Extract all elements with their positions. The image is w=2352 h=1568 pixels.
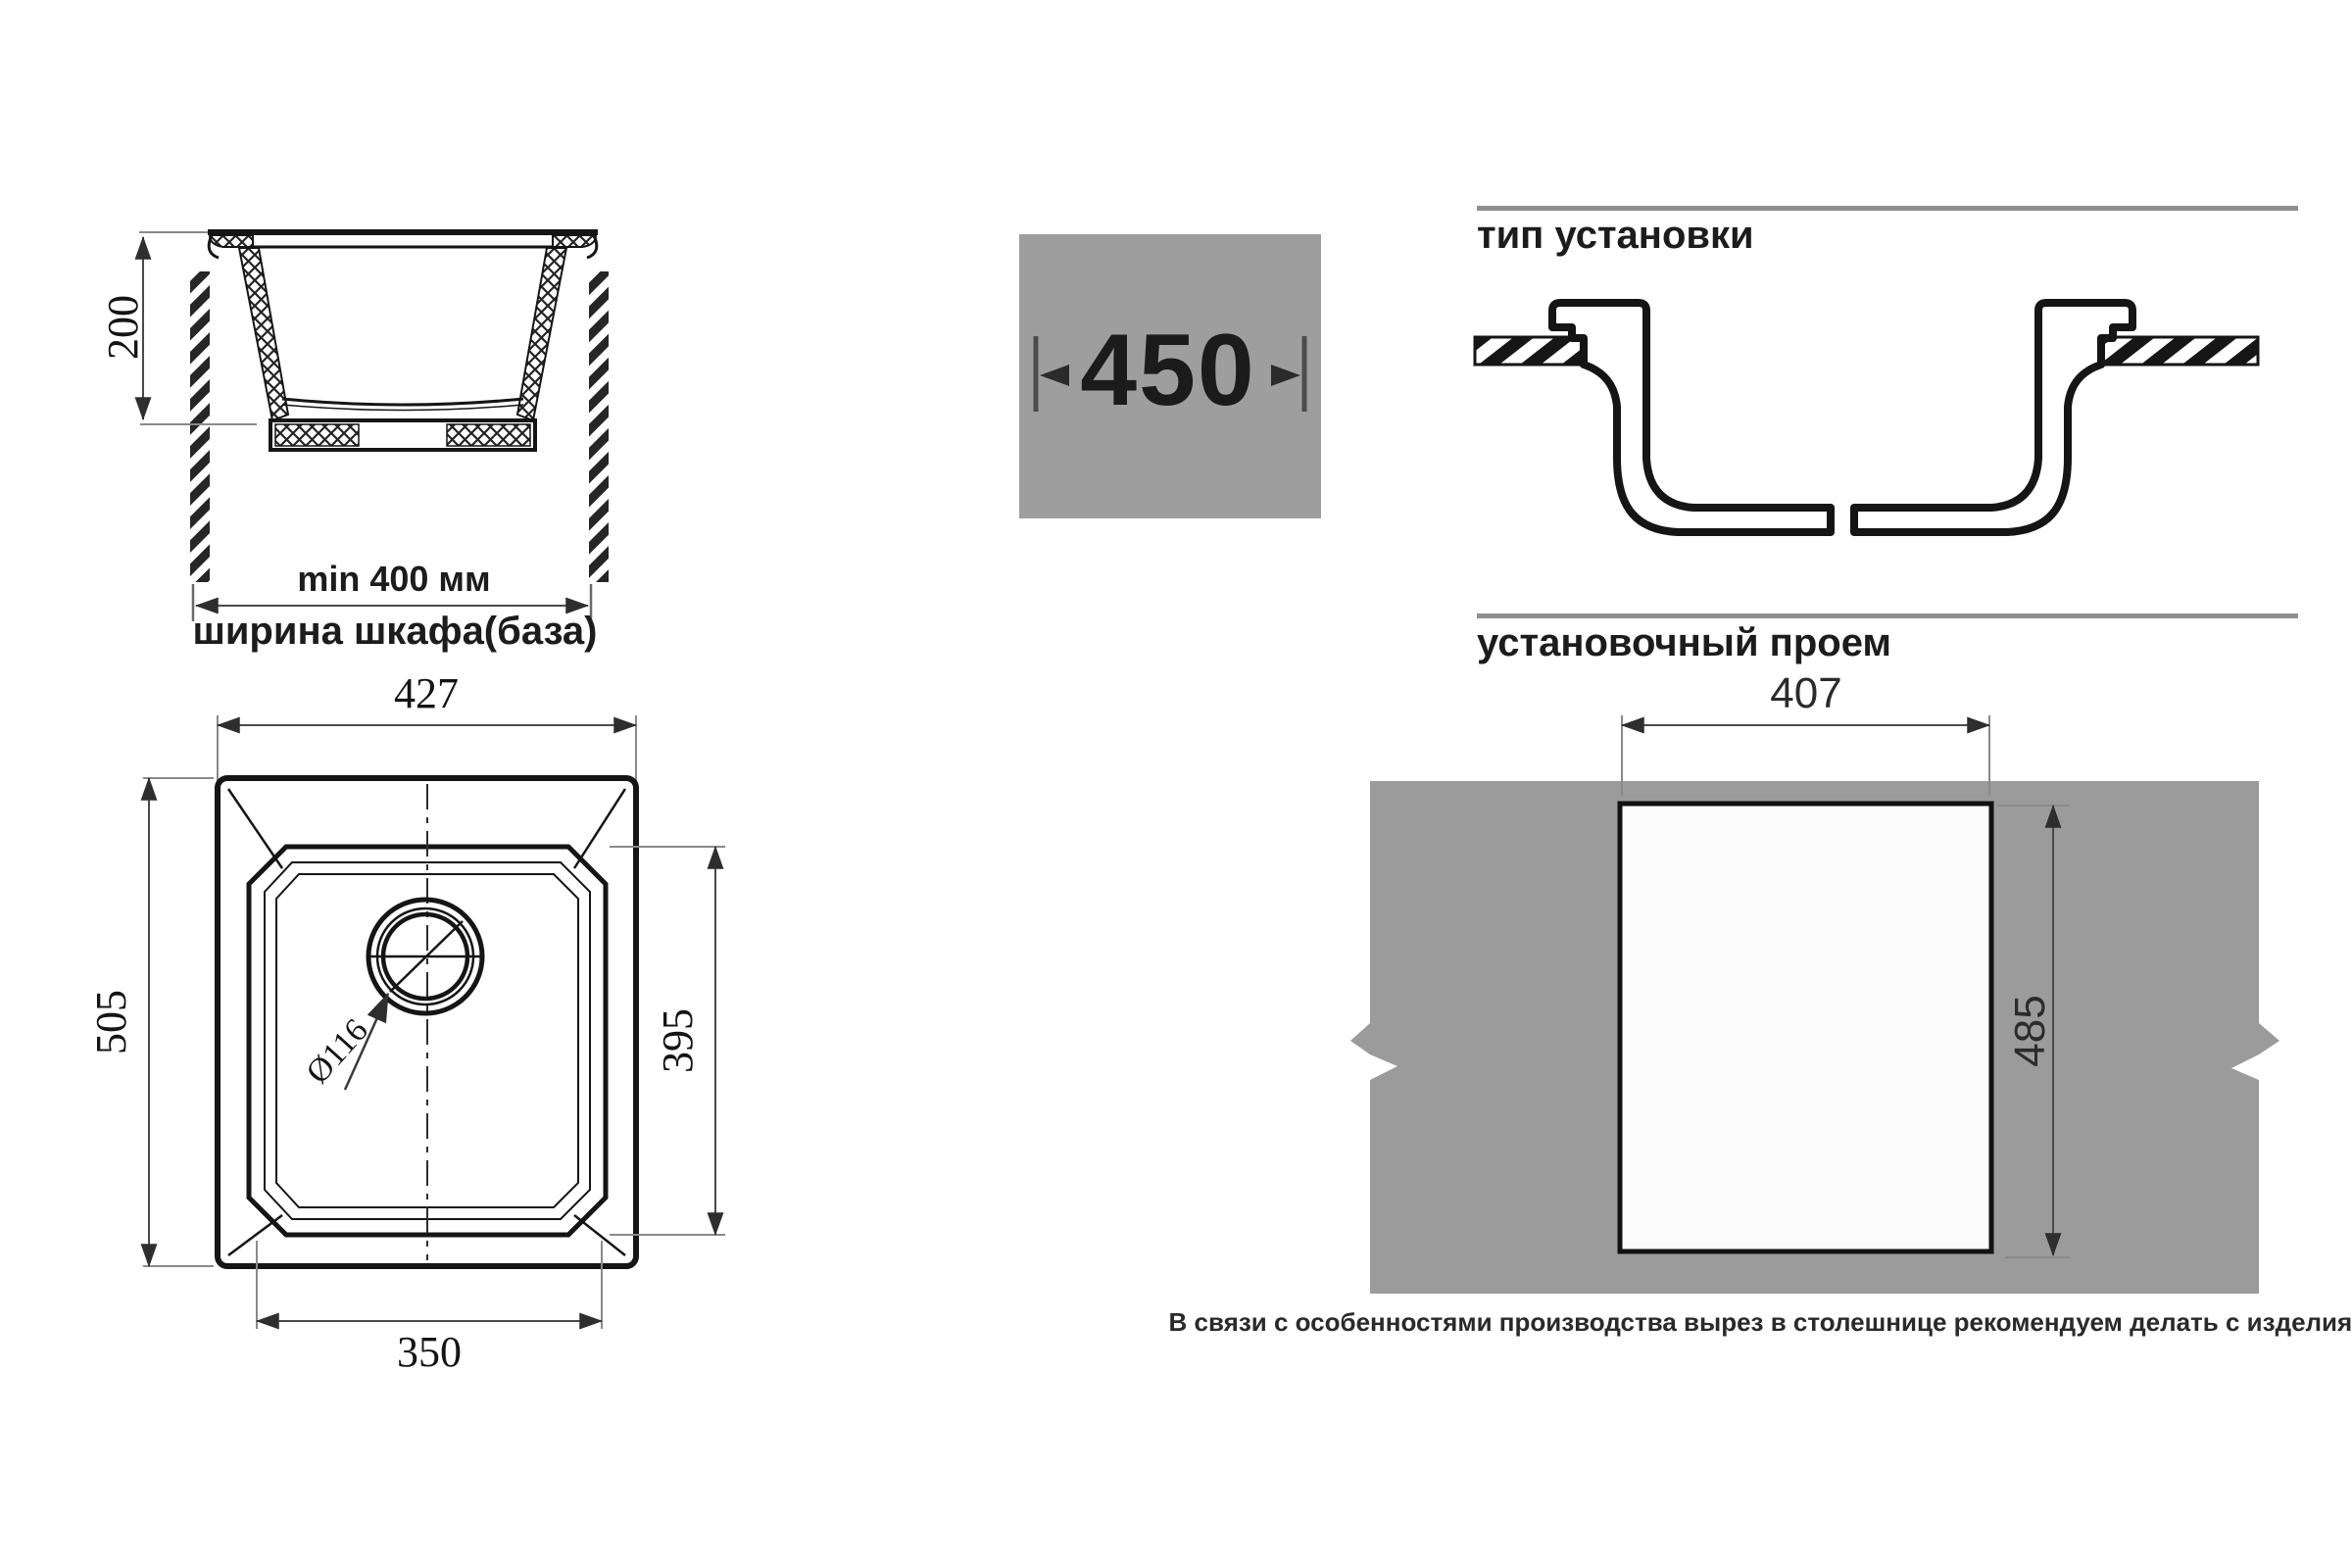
cutout-hole xyxy=(1620,804,1991,1251)
countertop-left xyxy=(1475,337,1585,365)
cabinet-wall-right xyxy=(589,271,609,582)
break-notch-left xyxy=(1350,1023,1370,1054)
cabinet-width-label: ширина шкафа(база) xyxy=(192,610,597,653)
sink-profile-right xyxy=(1854,303,2132,532)
dim-width-427-label: 427 xyxy=(394,669,459,717)
dim-cutout-width-407: 407 xyxy=(1622,669,1989,796)
dim-depth-200: 200 xyxy=(99,237,257,424)
cabinet-wall-left xyxy=(190,271,210,582)
flange-tip-left xyxy=(210,235,253,247)
min-width-label: min 400 мм xyxy=(297,559,490,599)
cabinet-section-view: 200 min 400 мм ширина шкафа(база) xyxy=(99,232,609,653)
flange-tip-right xyxy=(553,235,596,247)
badge-width-label: 450 xyxy=(1080,314,1256,427)
production-note: В связи с особенностями производства выр… xyxy=(1169,1307,2352,1337)
dim-height-505-label: 505 xyxy=(87,990,135,1054)
install-type-section: тип установки xyxy=(1475,206,2298,532)
sink-technical-drawing: 200 min 400 мм ширина шкафа(база) 450 ти… xyxy=(0,0,2352,1568)
bowl-wall-left xyxy=(239,248,288,420)
cutout-heading: установочный проем xyxy=(1477,621,1891,664)
dim-cutout-height-485-label: 485 xyxy=(2006,995,2054,1066)
dim-width-427: 427 xyxy=(218,669,636,784)
cutout-section: установочный проем 407 485 В связи с осо… xyxy=(1169,613,2352,1337)
bowl-wall-right xyxy=(517,248,566,420)
dim-min-width-400: min 400 мм ширина шкафа(база) xyxy=(192,559,597,653)
install-type-heading: тип установки xyxy=(1477,214,1754,257)
sink-profile-left xyxy=(1552,303,1831,532)
dim-height-505: 505 xyxy=(87,778,214,1266)
dim-bowl-width-350-label: 350 xyxy=(397,1328,462,1376)
cutout-rule xyxy=(1477,613,2298,618)
dim-bowl-height-395-label: 395 xyxy=(654,1008,702,1073)
sink-top-view: 427 Ø116 505 xyxy=(87,669,725,1376)
install-type-rule xyxy=(1477,206,2298,211)
break-notch-right xyxy=(2259,1023,2279,1054)
dim-depth-200-label: 200 xyxy=(99,295,147,360)
dim-cutout-width-407-label: 407 xyxy=(1770,669,1841,717)
countertop-right xyxy=(2101,337,2258,365)
width-badge-450: 450 xyxy=(1019,234,1321,518)
